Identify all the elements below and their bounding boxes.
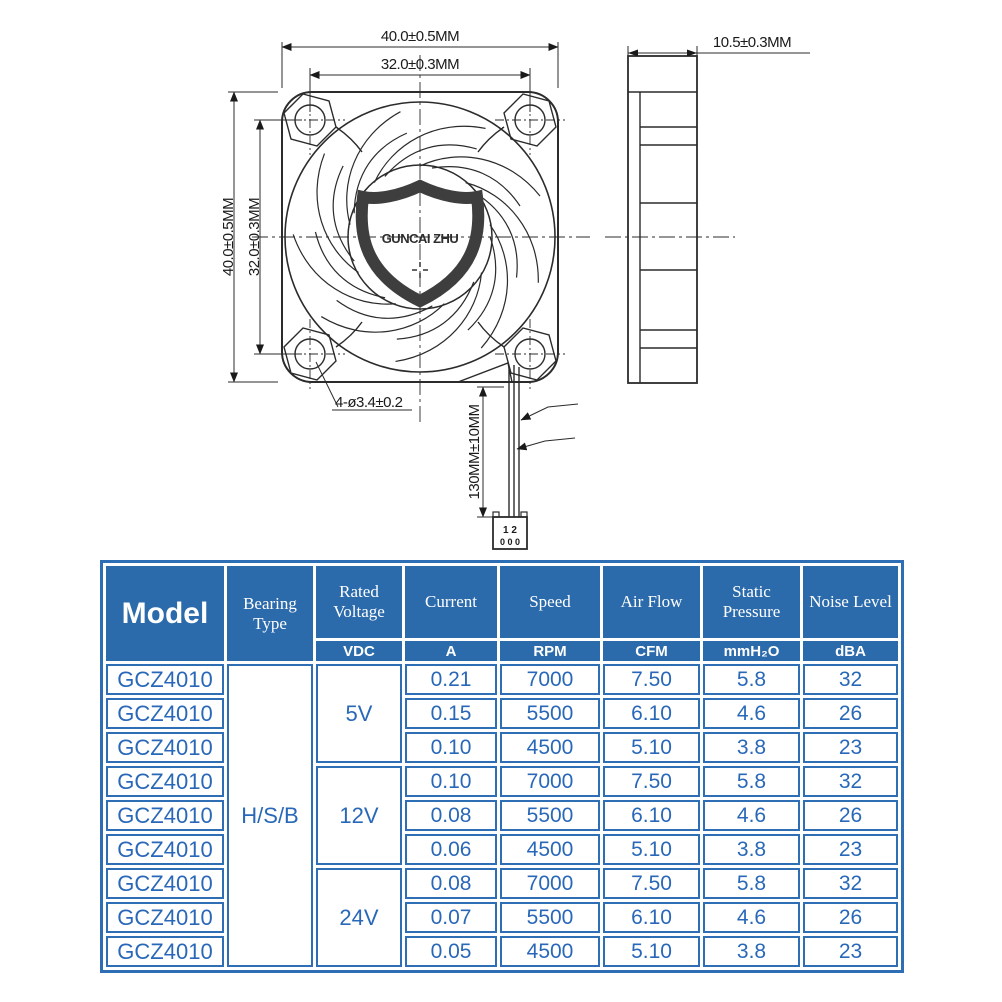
cell-airflow: 7.50 (603, 664, 700, 695)
cell-noise: 23 (803, 834, 898, 865)
cell-model: GCZ4010 (106, 868, 224, 899)
col-header-voltage: Rated Voltage (316, 566, 402, 638)
svg-text:130MM±10MM: 130MM±10MM (466, 405, 483, 500)
cell-voltage-24v: 24V (316, 868, 402, 967)
cell-speed: 5500 (500, 800, 600, 831)
cell-current: 0.10 (405, 766, 497, 797)
cell-voltage-12v: 12V (316, 766, 402, 865)
cell-current: 0.05 (405, 936, 497, 967)
unit-voltage: VDC (316, 641, 402, 661)
table-row: GCZ4010 H/S/B 5V 0.21 7000 7.50 5.8 32 (106, 664, 898, 695)
svg-text:32.0±0.3MM: 32.0±0.3MM (246, 198, 263, 276)
table-row: GCZ4010 24V 0.08 7000 7.50 5.8 32 (106, 868, 898, 899)
cell-noise: 23 (803, 936, 898, 967)
col-header-airflow: Air Flow (603, 566, 700, 638)
cell-model: GCZ4010 (106, 698, 224, 729)
fan-spec-table: Model Bearing Type Rated Voltage Current… (100, 560, 904, 973)
brand-logo-text: GUNCAI ZHU (382, 231, 459, 246)
cell-current: 0.15 (405, 698, 497, 729)
cell-pressure: 5.8 (703, 868, 800, 899)
cell-pressure: 5.8 (703, 664, 800, 695)
cell-pressure: 3.8 (703, 732, 800, 763)
table-row: GCZ4010 12V 0.10 7000 7.50 5.8 32 (106, 766, 898, 797)
col-header-noise: Noise Level (803, 566, 898, 638)
cell-current: 0.08 (405, 868, 497, 899)
table-row: GCZ4010 0.10 4500 5.10 3.8 23 (106, 732, 898, 763)
cell-bearing-type: H/S/B (227, 664, 313, 967)
svg-text:32.0±0.3MM: 32.0±0.3MM (381, 56, 459, 73)
unit-noise: dBA (803, 641, 898, 661)
col-header-speed: Speed (500, 566, 600, 638)
cell-current: 0.21 (405, 664, 497, 695)
cell-voltage-5v: 5V (316, 664, 402, 763)
fan-front-view: GUNCAI ZHU (252, 55, 590, 425)
unit-airflow: CFM (603, 641, 700, 661)
cell-current: 0.08 (405, 800, 497, 831)
cell-pressure: 5.8 (703, 766, 800, 797)
cell-speed: 4500 (500, 936, 600, 967)
cell-noise: 26 (803, 698, 898, 729)
connector-pin-numbers: 1 2 (503, 525, 517, 536)
fan-technical-drawing: GUNCAI ZHU 40.0±0.5MM 32.0±0.3MM 40.0±0.… (0, 0, 1002, 560)
cell-speed: 7000 (500, 664, 600, 695)
cell-airflow: 5.10 (603, 834, 700, 865)
unit-pressure: mmH₂O (703, 641, 800, 661)
cell-model: GCZ4010 (106, 664, 224, 695)
cell-current: 0.10 (405, 732, 497, 763)
table-row: GCZ4010 0.15 5500 6.10 4.6 26 (106, 698, 898, 729)
cell-noise: 26 (803, 800, 898, 831)
cell-noise: 32 (803, 766, 898, 797)
cell-airflow: 7.50 (603, 766, 700, 797)
cell-noise: 32 (803, 868, 898, 899)
cell-pressure: 4.6 (703, 902, 800, 933)
cell-speed: 5500 (500, 698, 600, 729)
cell-pressure: 3.8 (703, 834, 800, 865)
table-row: GCZ4010 0.07 5500 6.10 4.6 26 (106, 902, 898, 933)
cell-noise: 26 (803, 902, 898, 933)
cell-airflow: 5.10 (603, 936, 700, 967)
table-units-row: VDC A RPM CFM mmH₂O dBA (106, 641, 898, 661)
col-header-model: Model (106, 566, 224, 661)
cell-current: 0.06 (405, 834, 497, 865)
cell-noise: 32 (803, 664, 898, 695)
cell-speed: 4500 (500, 732, 600, 763)
table-header-row: Model Bearing Type Rated Voltage Current… (106, 566, 898, 638)
svg-text:4-ø3.4±0.2: 4-ø3.4±0.2 (335, 394, 403, 411)
col-header-bearing: Bearing Type (227, 566, 313, 661)
svg-text:40.0±0.5MM: 40.0±0.5MM (381, 28, 459, 45)
cell-airflow: 6.10 (603, 800, 700, 831)
connector: 1 2 0 0 0 (493, 512, 527, 549)
table-row: GCZ4010 0.05 4500 5.10 3.8 23 (106, 936, 898, 967)
cell-current: 0.07 (405, 902, 497, 933)
table-row: GCZ4010 0.08 5500 6.10 4.6 26 (106, 800, 898, 831)
product-spec-sheet: { "drawing": { "logo_text": "GUNCAI ZHU"… (0, 0, 1002, 1002)
cell-model: GCZ4010 (106, 766, 224, 797)
svg-text:40.0±0.5MM: 40.0±0.5MM (220, 198, 237, 276)
cell-speed: 7000 (500, 868, 600, 899)
col-header-current: Current (405, 566, 497, 638)
cell-model: GCZ4010 (106, 936, 224, 967)
cell-pressure: 3.8 (703, 936, 800, 967)
cell-model: GCZ4010 (106, 732, 224, 763)
cell-model: GCZ4010 (106, 800, 224, 831)
cell-model: GCZ4010 (106, 834, 224, 865)
lead-wires (509, 365, 578, 517)
cell-pressure: 4.6 (703, 698, 800, 729)
table-row: GCZ4010 0.06 4500 5.10 3.8 23 (106, 834, 898, 865)
unit-current: A (405, 641, 497, 661)
cell-speed: 7000 (500, 766, 600, 797)
connector-pin-holes: 0 0 0 (500, 537, 520, 547)
unit-speed: RPM (500, 641, 600, 661)
cell-speed: 4500 (500, 834, 600, 865)
fan-side-view (605, 56, 735, 383)
cell-pressure: 4.6 (703, 800, 800, 831)
cell-airflow: 7.50 (603, 868, 700, 899)
cell-speed: 5500 (500, 902, 600, 933)
cell-airflow: 6.10 (603, 902, 700, 933)
col-header-pressure: Static Pressure (703, 566, 800, 638)
svg-text:10.5±0.3MM: 10.5±0.3MM (713, 34, 791, 51)
dimension-cable-length: 130MM±10MM (466, 387, 504, 517)
cell-model: GCZ4010 (106, 902, 224, 933)
cell-airflow: 5.10 (603, 732, 700, 763)
cell-noise: 23 (803, 732, 898, 763)
cable-exit (458, 363, 512, 382)
cell-airflow: 6.10 (603, 698, 700, 729)
